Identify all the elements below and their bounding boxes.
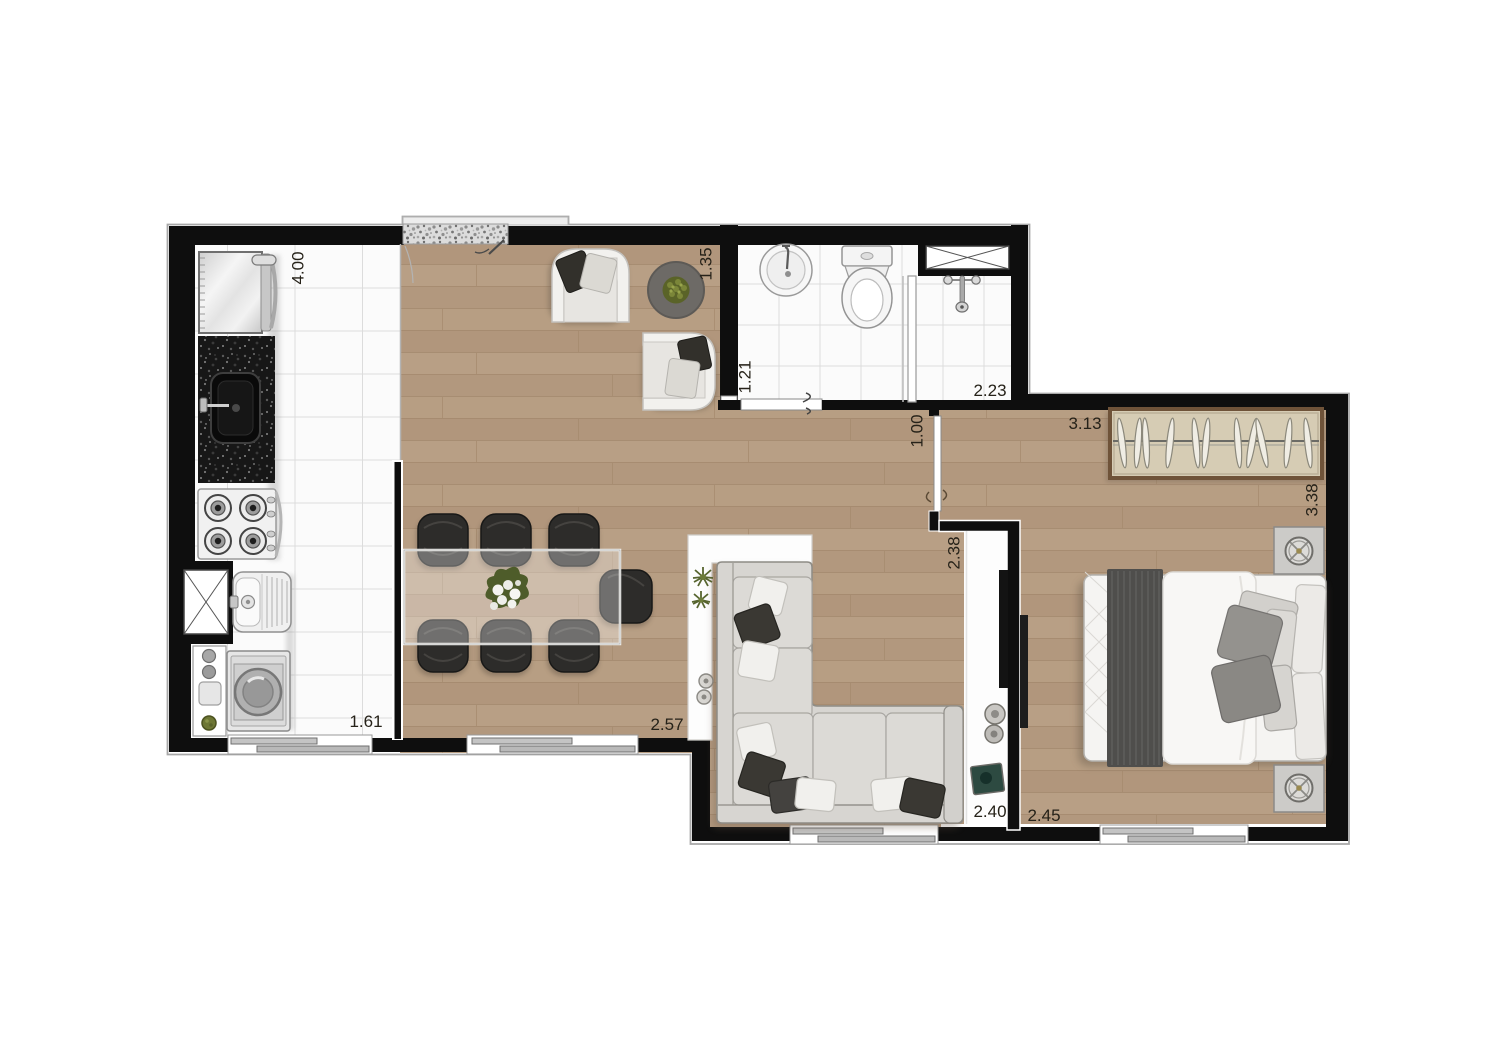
svg-text:2.40: 2.40	[973, 802, 1006, 821]
svg-text:1.35: 1.35	[696, 247, 715, 280]
svg-text:2.45: 2.45	[1027, 806, 1060, 825]
svg-text:1.00: 1.00	[907, 414, 926, 447]
svg-text:2.23: 2.23	[973, 381, 1006, 400]
svg-text:4.00: 4.00	[288, 251, 307, 284]
svg-text:1.21: 1.21	[735, 360, 754, 393]
svg-text:3.38: 3.38	[1302, 483, 1321, 516]
svg-text:1.61: 1.61	[349, 712, 382, 731]
svg-text:2.38: 2.38	[944, 536, 963, 569]
svg-text:3.13: 3.13	[1068, 414, 1101, 433]
svg-text:2.57: 2.57	[650, 715, 683, 734]
